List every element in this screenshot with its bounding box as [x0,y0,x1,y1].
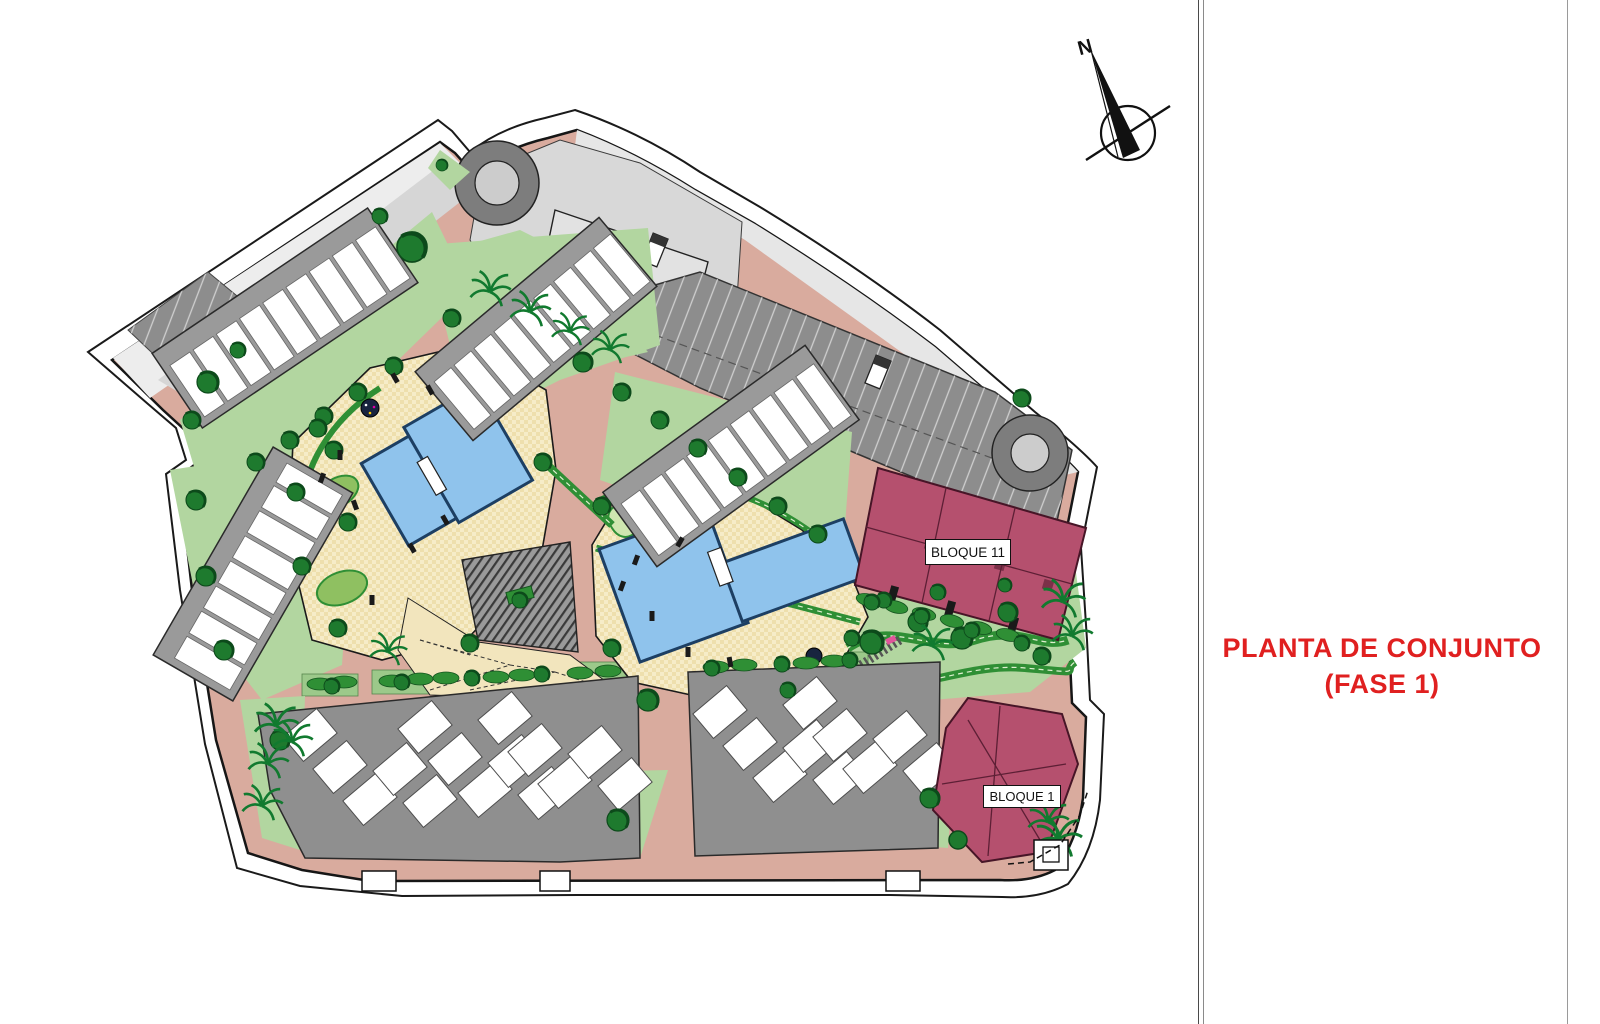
panel-divider-right [1567,0,1568,1024]
roundabout-left [455,141,539,225]
drawing-title-line2: (FASE 1) [1206,666,1558,702]
panel-divider-left [1198,0,1204,1024]
apartment-band-southeast [688,662,957,856]
roundabout-right [992,415,1068,491]
drawing-title: PLANTA DE CONJUNTO (FASE 1) [1206,630,1558,703]
north-compass: N [1075,35,1170,160]
compass-north-letter: N [1075,35,1095,60]
site-plan-drawing: N [0,0,1600,1024]
bloque-1-label: BLOQUE 1 [983,785,1061,808]
drawing-sheet: N BLOQUE 11 BLOQUE 1 PLANTA DE CONJUNTO … [0,0,1600,1024]
drawing-title-line1: PLANTA DE CONJUNTO [1206,630,1558,666]
bloque-11-label: BLOQUE 11 [925,539,1011,565]
